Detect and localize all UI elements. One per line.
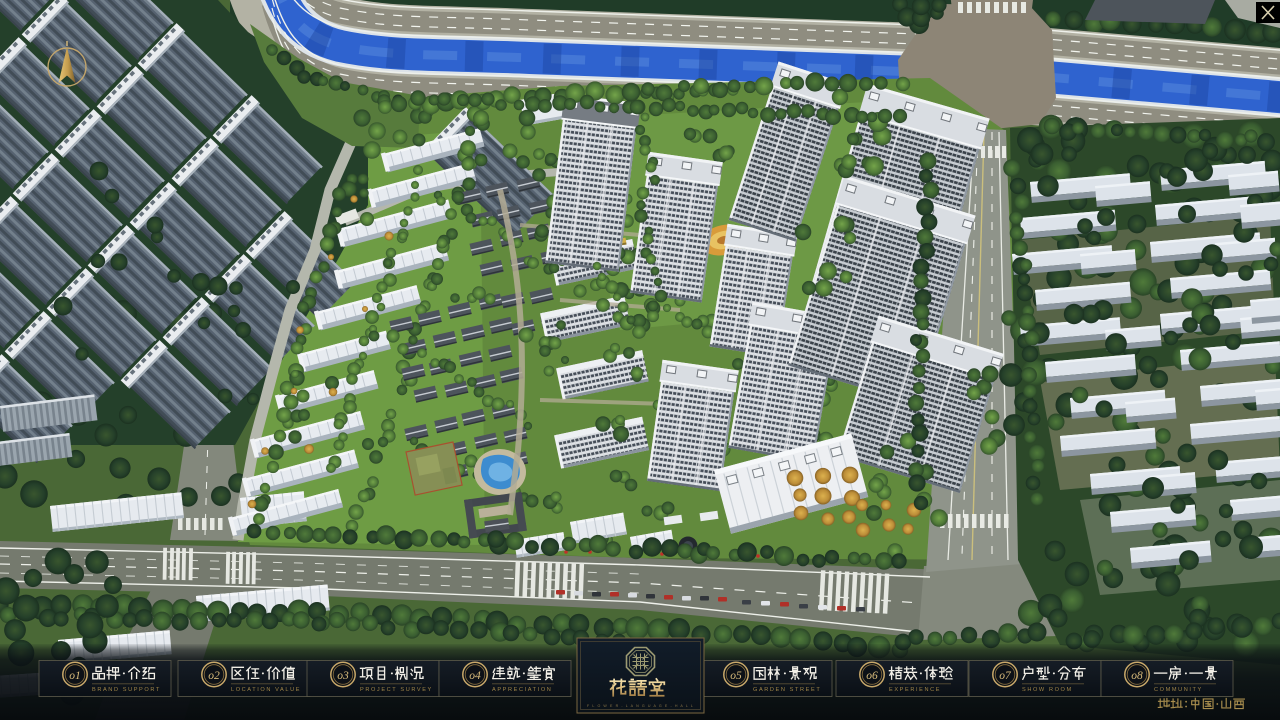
svg-text:o5: o5 [730, 670, 742, 682]
svg-text:SHOW ROOM: SHOW ROOM [1022, 687, 1073, 693]
svg-text:PROJECT SURVEY: PROJECT SURVEY [360, 687, 433, 693]
svg-text:o2: o2 [208, 670, 220, 682]
svg-text:o6: o6 [866, 670, 878, 682]
svg-text:o7: o7 [999, 670, 1012, 682]
svg-text:EXPERIENCE: EXPERIENCE [889, 687, 941, 693]
svg-text:o3: o3 [337, 670, 349, 682]
svg-text:o8: o8 [1131, 670, 1143, 682]
svg-text:F L O W E R - L A N G U A G E: F L O W E R - L A N G U A G E - H A L L [587, 704, 694, 708]
svg-text:COMMUNITY: COMMUNITY [1154, 687, 1203, 693]
svg-text:GARDEN STREET: GARDEN STREET [753, 687, 821, 693]
svg-text:APPRECIATION: APPRECIATION [492, 687, 552, 693]
svg-text:o4: o4 [469, 670, 481, 682]
svg-text:BRAND SUPPORT: BRAND SUPPORT [92, 687, 161, 693]
svg-text:LOCATION VALUE: LOCATION VALUE [231, 687, 301, 693]
svg-text:o1: o1 [69, 670, 81, 682]
